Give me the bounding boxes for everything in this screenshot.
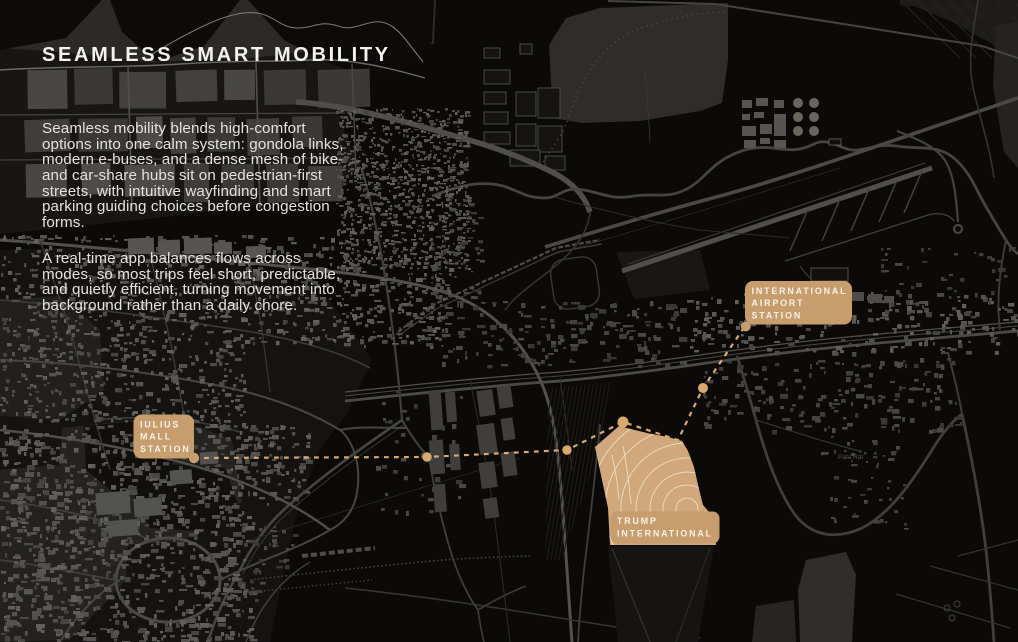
- svg-text:Pata Rât: Pata Rât: [838, 454, 863, 461]
- svg-text:IULIUS: IULIUS: [140, 419, 180, 429]
- svg-text:STATION: STATION: [752, 310, 803, 320]
- svg-text:INTERNATIONAL: INTERNATIONAL: [617, 528, 713, 538]
- svg-text:TRUMP: TRUMP: [617, 516, 658, 526]
- svg-text:STATION: STATION: [140, 444, 191, 454]
- svg-text:INTERNATIONAL: INTERNATIONAL: [752, 286, 848, 296]
- svg-text:AIRPORT: AIRPORT: [752, 298, 805, 308]
- svg-text:MALL: MALL: [140, 432, 172, 442]
